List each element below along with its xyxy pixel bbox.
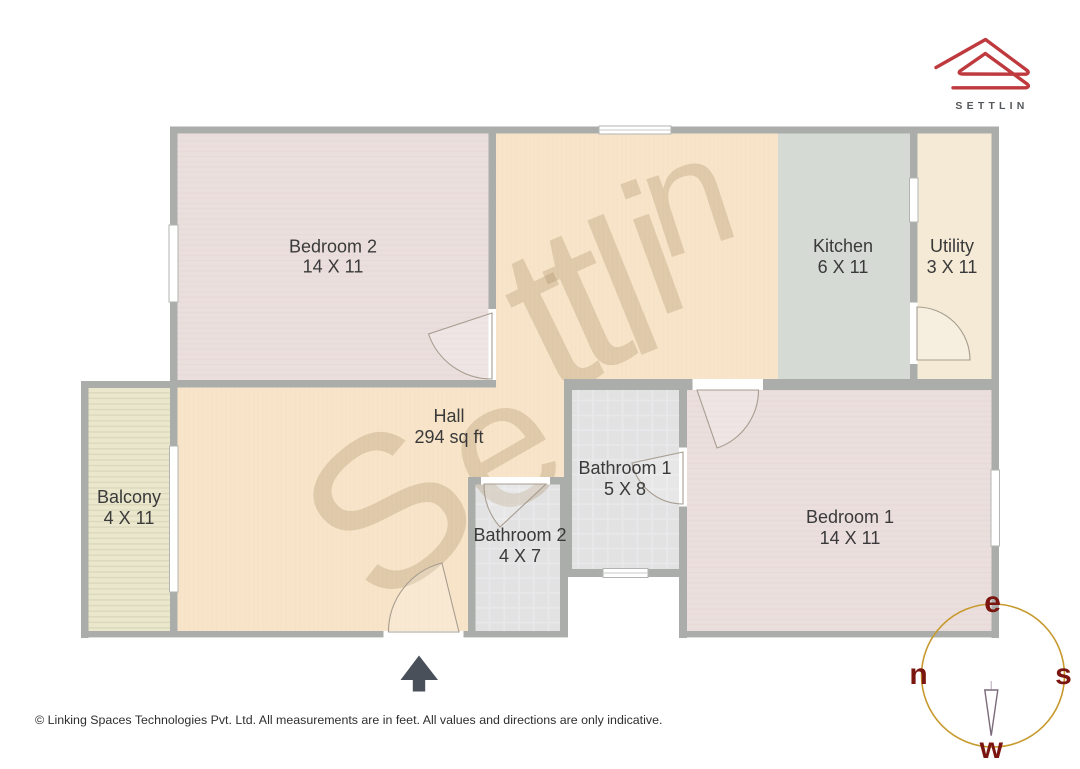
- svg-text:Bedroom 1: Bedroom 1: [806, 507, 894, 527]
- svg-text:4 X 11: 4 X 11: [104, 508, 155, 528]
- svg-text:4 X 7: 4 X 7: [499, 546, 541, 566]
- svg-text:5 X 8: 5 X 8: [604, 479, 646, 499]
- svg-text:Balcony: Balcony: [97, 487, 161, 507]
- svg-text:Bathroom 2: Bathroom 2: [473, 525, 566, 545]
- svg-text:14 X 11: 14 X 11: [303, 257, 364, 277]
- svg-text:Bathroom 1: Bathroom 1: [578, 458, 671, 478]
- svg-text:w: w: [979, 732, 1004, 764]
- svg-text:e: e: [984, 586, 1001, 619]
- svg-text:Kitchen: Kitchen: [813, 236, 873, 256]
- svg-text:Bedroom 2: Bedroom 2: [289, 237, 377, 257]
- svg-text:s: s: [1055, 658, 1072, 691]
- svg-text:6 X 11: 6 X 11: [818, 257, 869, 277]
- svg-text:14 X 11: 14 X 11: [820, 528, 881, 548]
- svg-text:© Linking Spaces Technologies: © Linking Spaces Technologies Pvt. Ltd. …: [35, 713, 662, 727]
- svg-text:Utility: Utility: [930, 236, 974, 256]
- svg-text:294 sq ft: 294 sq ft: [414, 427, 483, 447]
- svg-text:Hall: Hall: [433, 406, 464, 426]
- svg-text:3 X 11: 3 X 11: [927, 257, 978, 277]
- svg-text:SETTLIN: SETTLIN: [955, 100, 1028, 112]
- svg-text:n: n: [909, 658, 927, 691]
